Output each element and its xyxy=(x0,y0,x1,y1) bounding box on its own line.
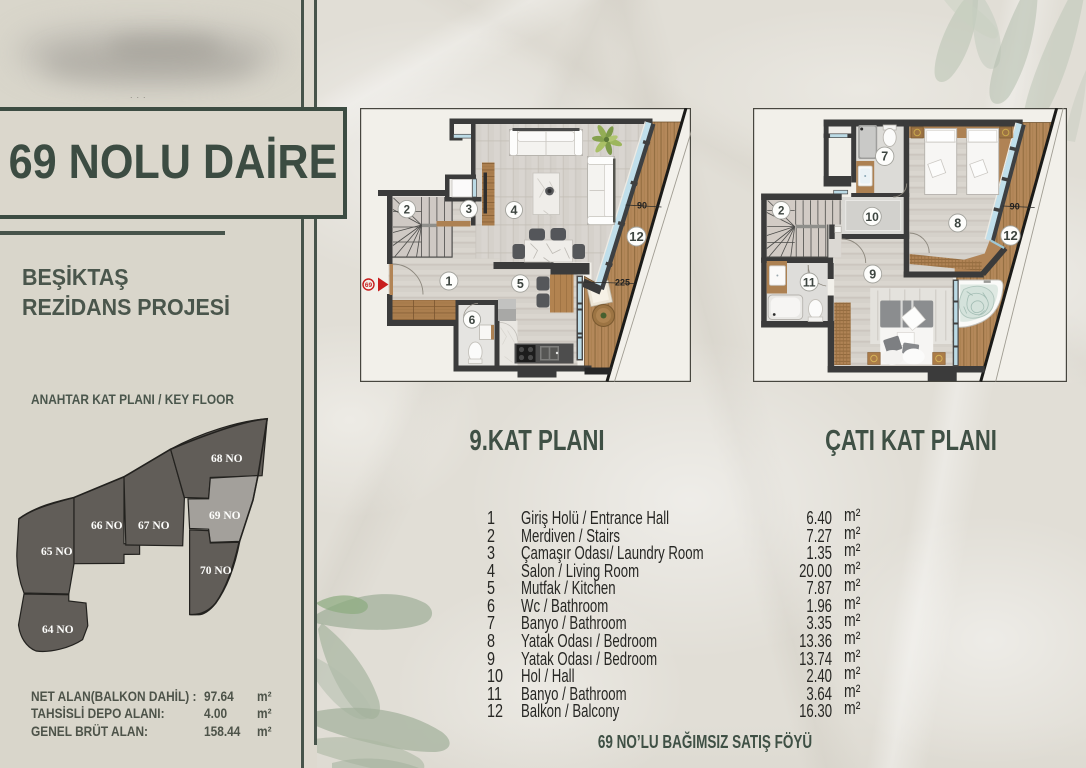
svg-text:70 NO: 70 NO xyxy=(200,565,232,577)
svg-text:66 NO: 66 NO xyxy=(91,520,123,532)
svg-text:7: 7 xyxy=(882,149,889,163)
svg-text:12: 12 xyxy=(629,229,643,244)
svg-text:1: 1 xyxy=(445,274,452,288)
svg-text:225: 225 xyxy=(614,277,629,287)
svg-text:12: 12 xyxy=(1004,228,1018,243)
svg-text:9: 9 xyxy=(870,267,877,281)
svg-text:6: 6 xyxy=(468,312,475,326)
svg-text:5: 5 xyxy=(516,276,523,290)
svg-text:4: 4 xyxy=(510,203,517,217)
svg-text:8: 8 xyxy=(955,216,962,230)
svg-text:90: 90 xyxy=(636,200,646,210)
svg-text:2: 2 xyxy=(778,205,784,217)
svg-text:10: 10 xyxy=(866,209,880,223)
svg-text:69 NO: 69 NO xyxy=(209,510,241,522)
svg-text:2: 2 xyxy=(403,204,409,216)
svg-text:90: 90 xyxy=(1010,201,1020,211)
svg-text:11: 11 xyxy=(803,275,816,289)
svg-text:3: 3 xyxy=(465,204,471,216)
svg-text:65 NO: 65 NO xyxy=(41,546,73,558)
svg-text:64 NO: 64 NO xyxy=(42,624,74,636)
svg-text:68 NO: 68 NO xyxy=(211,453,243,465)
svg-text:69: 69 xyxy=(364,282,372,289)
svg-text:67 NO: 67 NO xyxy=(138,520,170,532)
